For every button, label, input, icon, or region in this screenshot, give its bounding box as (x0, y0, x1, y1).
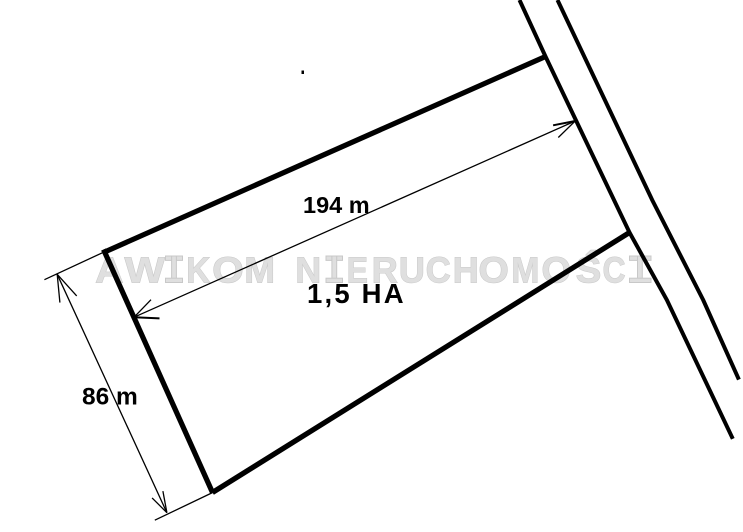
svg-text:M: M (511, 250, 539, 291)
svg-text:M: M (244, 250, 275, 291)
svg-text:C: C (426, 250, 451, 291)
svg-text:H: H (453, 249, 479, 290)
svg-text:86 m: 86 m (82, 384, 138, 411)
svg-text:194 m: 194 m (303, 192, 370, 218)
svg-text:W: W (125, 250, 166, 290)
svg-text:1,5 HA: 1,5 HA (307, 278, 406, 309)
svg-text:O: O (479, 250, 509, 291)
svg-text:C: C (603, 250, 626, 291)
